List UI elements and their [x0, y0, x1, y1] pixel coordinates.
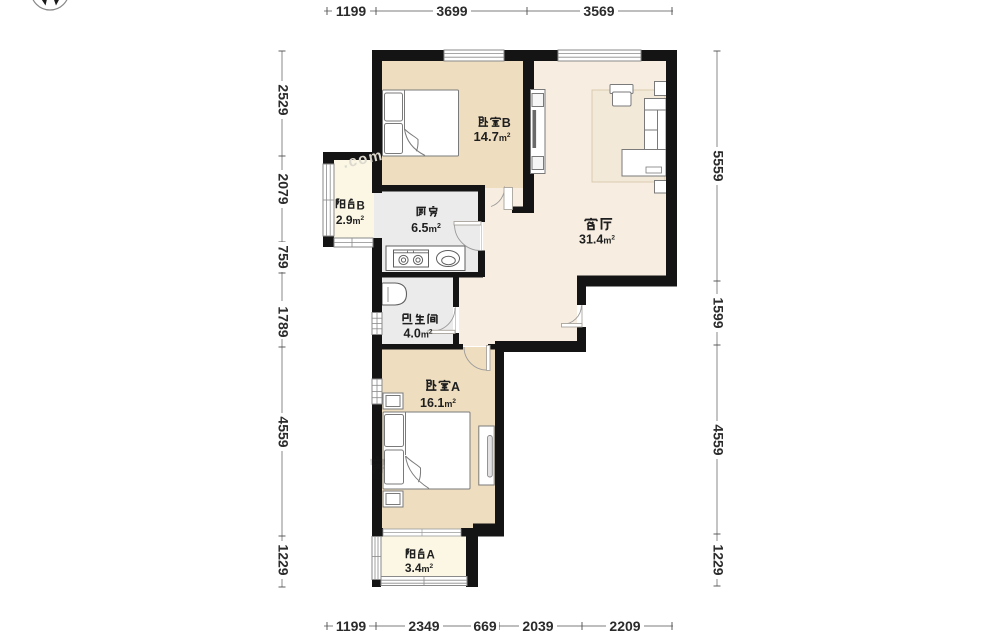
svg-text:2079: 2079 [276, 173, 292, 204]
svg-text:B: B [502, 116, 511, 130]
svg-text:1199: 1199 [336, 618, 367, 634]
svg-text:1229: 1229 [711, 544, 727, 575]
svg-text:2529: 2529 [276, 84, 292, 115]
svg-text:2349: 2349 [408, 618, 439, 634]
svg-text:A: A [451, 380, 460, 394]
svg-text:2039: 2039 [522, 618, 553, 634]
svg-text:3699: 3699 [436, 3, 467, 19]
svg-text:4559: 4559 [711, 424, 727, 455]
svg-text:2.9m2: 2.9m2 [336, 213, 365, 227]
svg-text:2209: 2209 [609, 618, 640, 634]
svg-text:3569: 3569 [583, 3, 614, 19]
svg-text:1199: 1199 [336, 3, 367, 19]
svg-text:5559: 5559 [711, 150, 727, 181]
svg-text:16.1m2: 16.1m2 [420, 396, 456, 410]
svg-text:1789: 1789 [276, 306, 292, 337]
svg-text:4.0m2: 4.0m2 [403, 327, 432, 341]
svg-text:669: 669 [473, 618, 497, 634]
svg-text:1599: 1599 [711, 297, 727, 328]
svg-text:A: A [427, 550, 435, 562]
svg-text:759: 759 [276, 245, 292, 269]
svg-text:3.4m2: 3.4m2 [405, 561, 434, 575]
svg-text:31.4m2: 31.4m2 [579, 233, 615, 247]
svg-text:6.5m2: 6.5m2 [411, 221, 441, 235]
svg-text:4559: 4559 [276, 416, 292, 447]
svg-text:B: B [357, 201, 365, 213]
svg-text:1229: 1229 [276, 544, 292, 575]
